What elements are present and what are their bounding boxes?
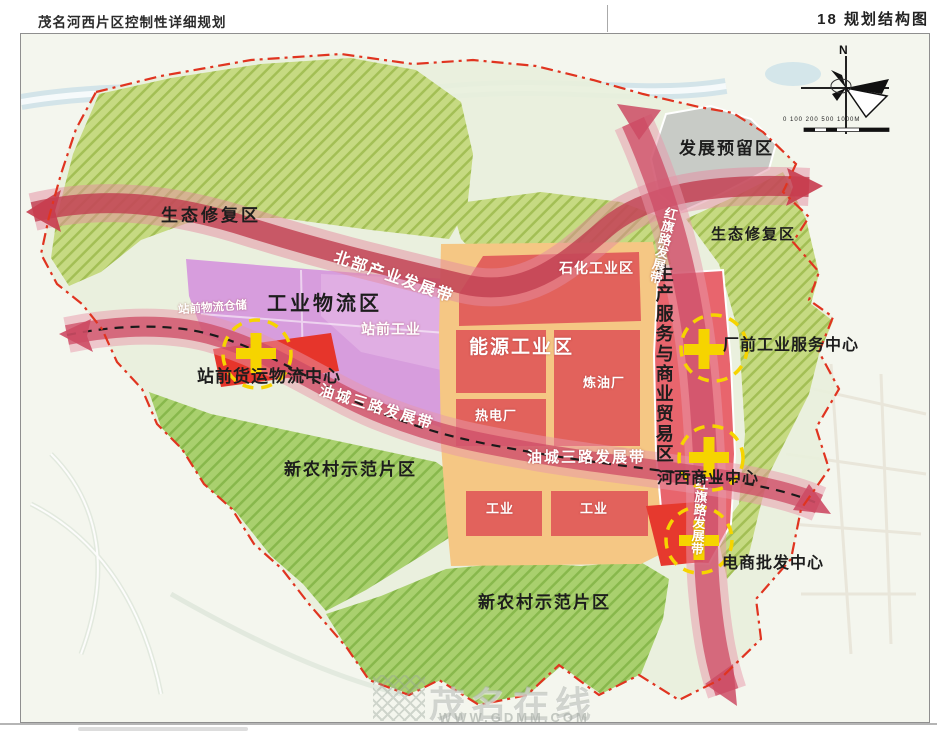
compass-north-label: N	[839, 43, 848, 57]
watermark-site-url: WWW.GDMM.COM	[439, 710, 590, 723]
scale-bar	[804, 128, 889, 132]
header-divider	[607, 5, 608, 32]
zone-label-industry-right: 工业	[580, 502, 608, 517]
watermark-logo-icon	[373, 675, 425, 721]
bottom-rule	[0, 723, 937, 725]
zone-label-industry-left: 工业	[486, 502, 514, 517]
zone-label-petrochemical: 石化工业区	[559, 260, 634, 276]
zone-label-station-industry: 站前工业	[361, 321, 421, 337]
zone-label-dev-reserve: 发展预留区	[679, 139, 774, 159]
planning-map: 生态修复区 生态修复区 发展预留区 工业物流区 新农村示范片区 新农村示范片区 …	[20, 33, 930, 723]
zone-label-rural-left: 新农村示范片区	[284, 460, 417, 480]
caption-smudge	[78, 727, 248, 731]
center-label-ecommerce: 电商批发中心	[722, 555, 824, 573]
zone-label-refinery: 炼油厂	[583, 376, 625, 391]
zone-label-eco-right: 生态修复区	[711, 226, 796, 243]
center-label-factory-front: 厂前工业服务中心	[723, 337, 859, 355]
zone-label-eco-left: 生态修复区	[161, 206, 261, 226]
scale-text: 0 100 200 500 1000M	[783, 117, 860, 123]
belt-label-youcheng-right: 油城三路发展带	[527, 449, 646, 466]
zone-label-industrial-logistics: 工业物流区	[267, 293, 382, 316]
center-label-hexi-commercial: 河西商业中心	[657, 470, 759, 488]
planning-sheet: 茂名河西片区控制性详细规划 18 规划结构图	[0, 0, 937, 734]
zone-label-rural-bottom: 新农村示范片区	[478, 593, 611, 613]
center-label-station-freight: 站前货运物流中心	[197, 367, 341, 387]
doc-title: 茂名河西片区控制性详细规划	[38, 11, 227, 31]
zone-label-thermal-plant: 热电厂	[475, 409, 517, 424]
page-title: 18 规划结构图	[817, 8, 929, 29]
map-canvas	[21, 34, 929, 722]
zone-label-energy: 能源工业区	[469, 337, 574, 359]
